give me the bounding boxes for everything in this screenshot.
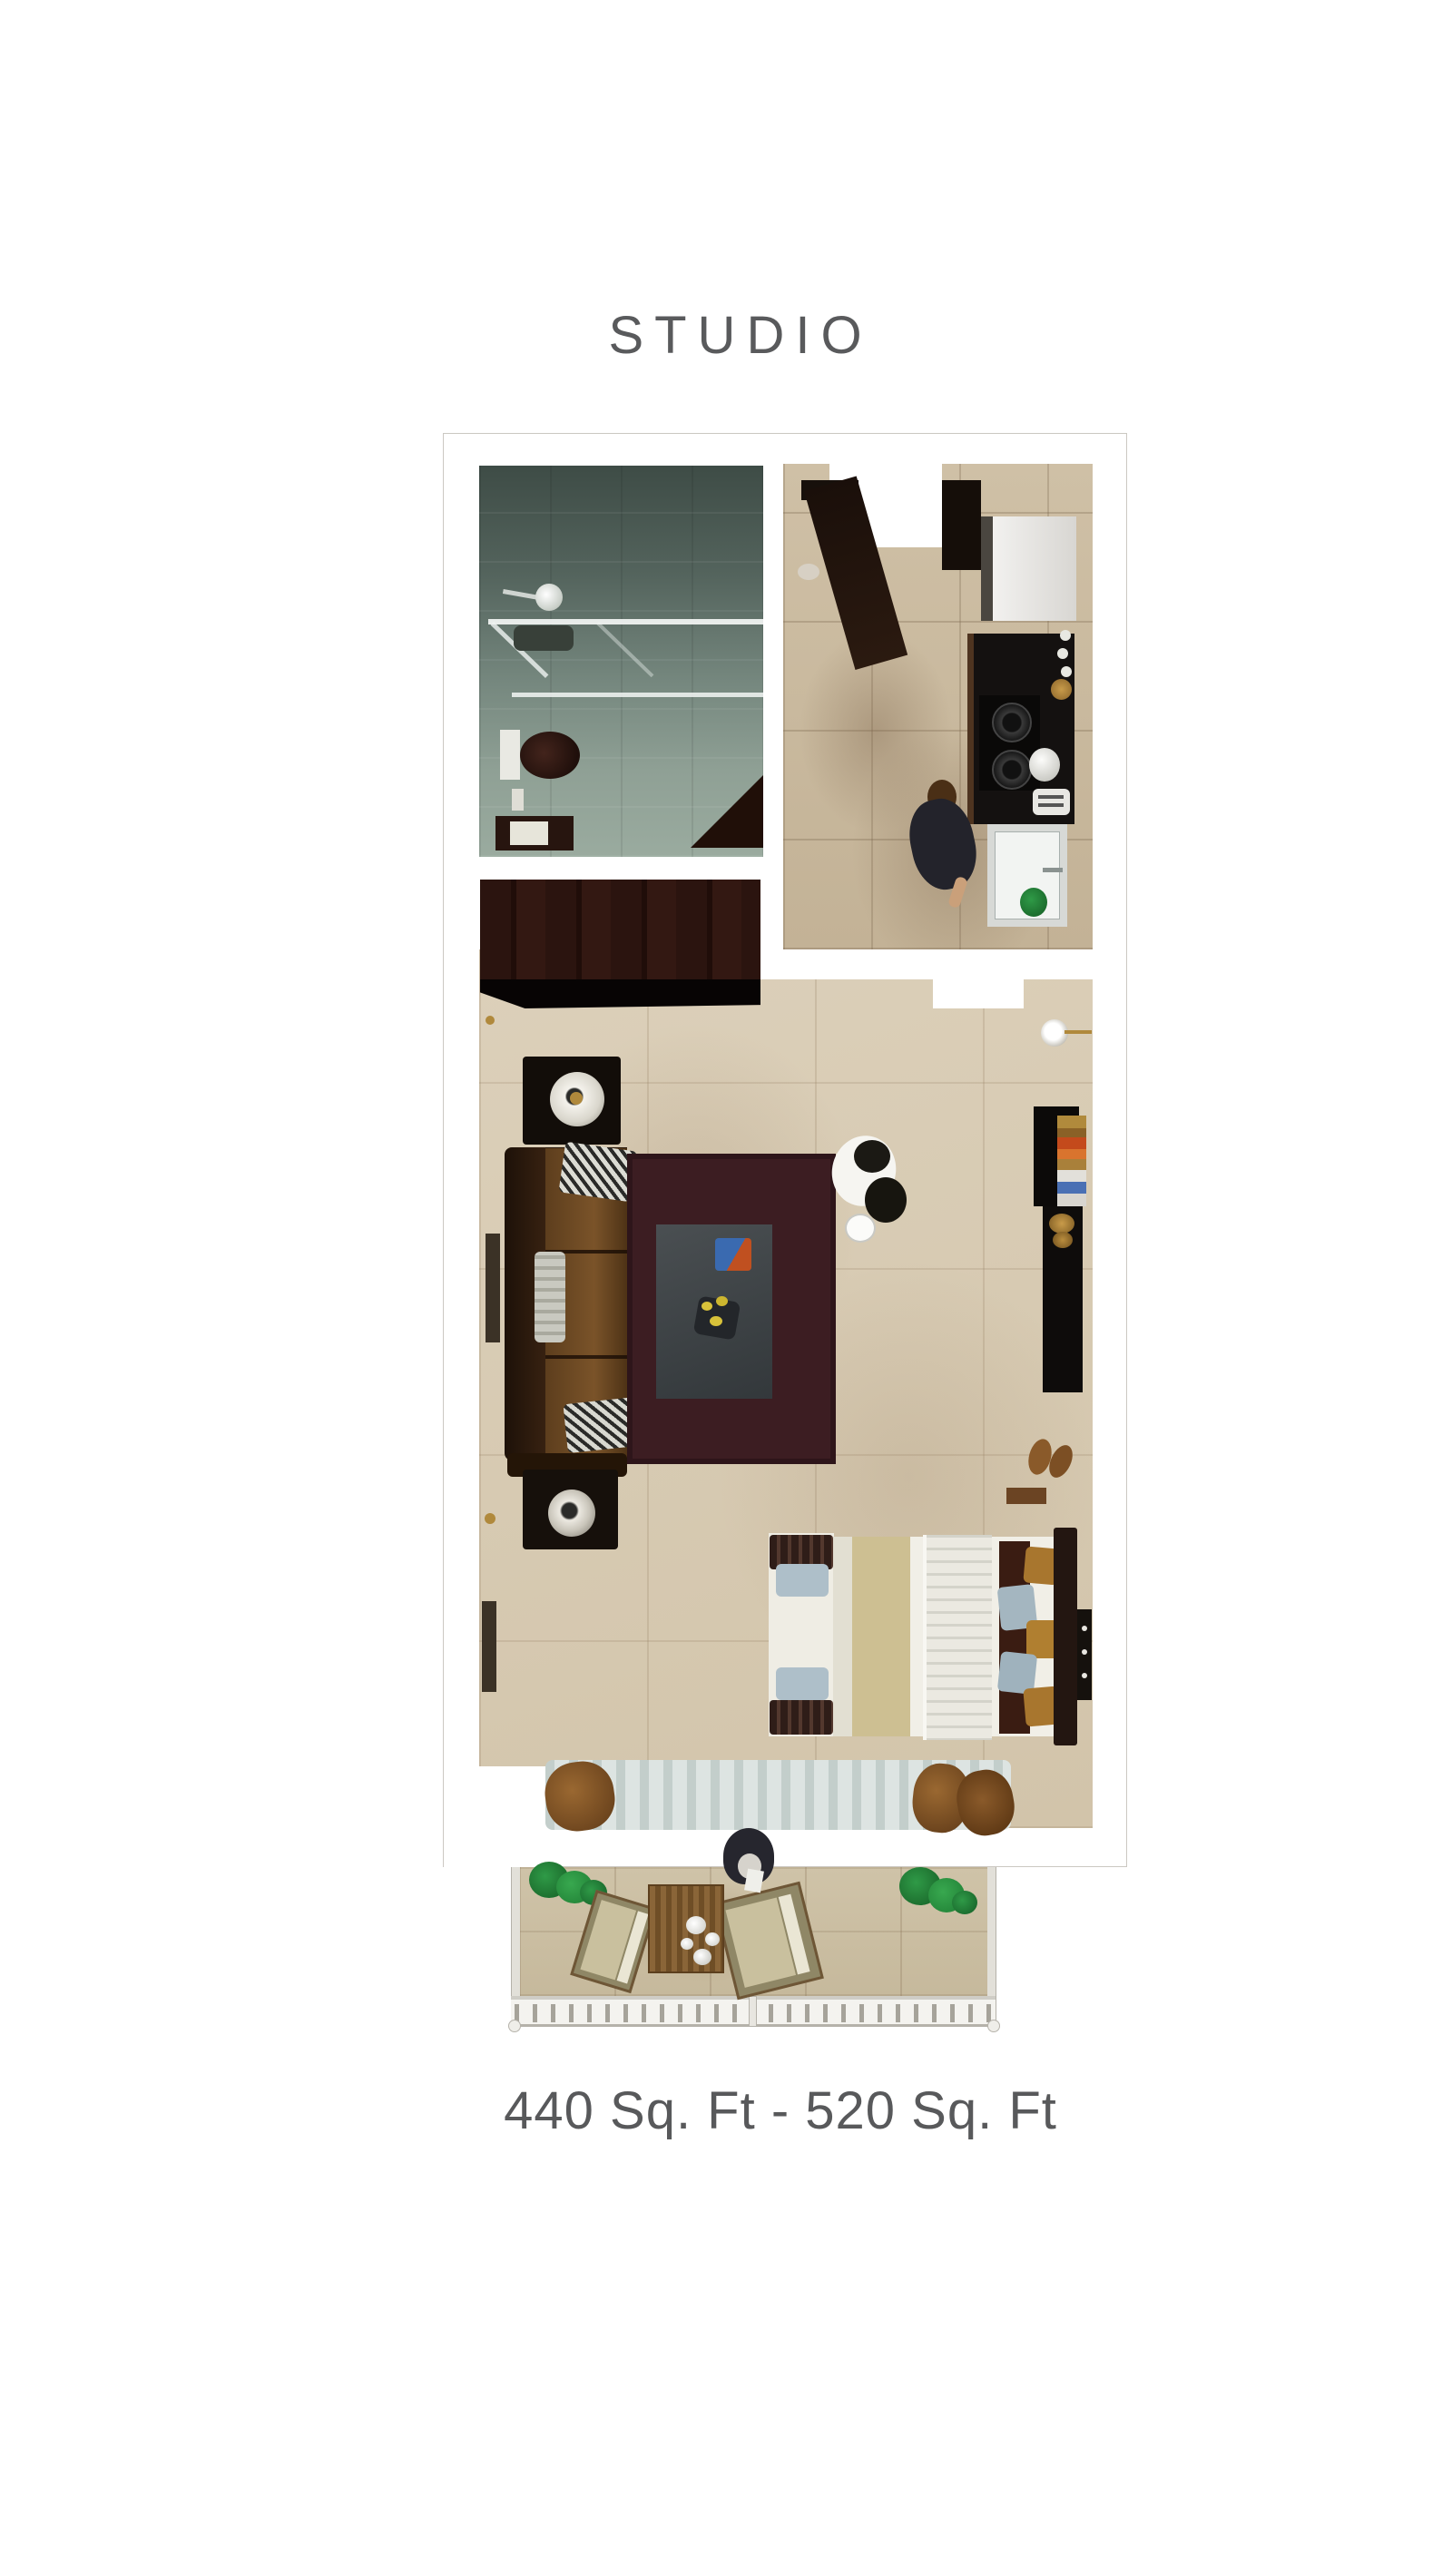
stove-burner <box>992 703 1032 742</box>
jar <box>1061 666 1072 677</box>
towel <box>510 821 548 845</box>
wall-knob <box>486 1016 495 1025</box>
wardrobe-shadow <box>480 979 760 1008</box>
bottom-wall-notch <box>444 1766 552 1868</box>
dresser-knob <box>1082 1626 1087 1631</box>
railing-finial <box>508 2020 521 2032</box>
shower-bench <box>514 625 574 651</box>
snack <box>701 1302 712 1311</box>
entry-door-jamb <box>942 480 981 570</box>
railing-finial <box>987 2020 1000 2032</box>
soap-box <box>512 789 524 811</box>
toaster-slot <box>1038 795 1064 799</box>
book-stack <box>1057 1116 1086 1206</box>
toilet-tank <box>500 730 520 780</box>
teapot <box>686 1916 706 1934</box>
speaker <box>548 1490 595 1537</box>
stove-burner <box>992 750 1032 790</box>
jar <box>1057 648 1068 659</box>
shower-glass-door <box>596 622 653 677</box>
bathroom-floor <box>479 466 763 857</box>
wardrobe <box>480 880 760 979</box>
dog-patch <box>854 1140 890 1173</box>
dresser <box>1077 1609 1092 1700</box>
railing-center-post <box>749 1996 757 2027</box>
kettle <box>1029 748 1060 782</box>
floor-plan-page: STUDIO <box>0 0 1452 2576</box>
table-lamp-center <box>570 1092 583 1105</box>
dresser-knob <box>1082 1673 1087 1678</box>
jar <box>1060 630 1071 641</box>
left-wall-window <box>486 1234 500 1342</box>
gold-decor <box>1053 1232 1073 1248</box>
teacup <box>681 1938 693 1950</box>
area-range-label: 440 Sq. Ft - 520 Sq. Ft <box>0 2080 1452 2141</box>
snack <box>710 1316 722 1326</box>
bench-cushion <box>770 1700 833 1735</box>
dog-bowl <box>845 1214 876 1243</box>
bed-headboard <box>1054 1528 1077 1745</box>
bathroom-door-open <box>691 775 763 848</box>
snack <box>716 1296 728 1306</box>
toilet-bowl <box>520 732 580 779</box>
door-light <box>798 564 819 580</box>
nightstand <box>1006 1488 1046 1504</box>
teacup <box>705 1932 720 1946</box>
bed-duvet <box>923 1535 992 1740</box>
sofa-pillow <box>535 1252 565 1342</box>
gold-decor <box>1049 1214 1074 1234</box>
wall-stub <box>933 979 1024 1008</box>
bench-pillow <box>776 1667 829 1700</box>
tablet <box>715 1238 751 1271</box>
page-title: STUDIO <box>0 305 1452 366</box>
fridge-shadow <box>981 516 993 621</box>
dog-head <box>865 1177 907 1223</box>
wall-knob <box>485 1513 495 1524</box>
dresser-knob <box>1082 1649 1087 1655</box>
shower-glass-panel <box>512 693 763 697</box>
shower-glass-panel <box>488 619 763 624</box>
fridge <box>993 516 1076 621</box>
sconce-arm <box>1064 1030 1092 1034</box>
sofa-pillow-patterned <box>558 1142 637 1203</box>
bed-sheet-edge <box>833 1537 853 1736</box>
bed-runner <box>852 1537 910 1736</box>
bench-pillow <box>776 1564 829 1597</box>
left-wall-window <box>482 1601 496 1692</box>
faucet <box>1043 868 1063 872</box>
sink-plant <box>1020 888 1047 917</box>
tea-plate <box>693 1949 711 1965</box>
balcony-plant <box>952 1891 977 1914</box>
floor-plan-frame <box>443 433 1127 1867</box>
shower-head <box>535 584 563 611</box>
kitchen-living-wall <box>760 949 1093 979</box>
toaster <box>1033 789 1070 815</box>
gold-jar <box>1051 679 1072 700</box>
toaster-slot <box>1038 803 1064 807</box>
